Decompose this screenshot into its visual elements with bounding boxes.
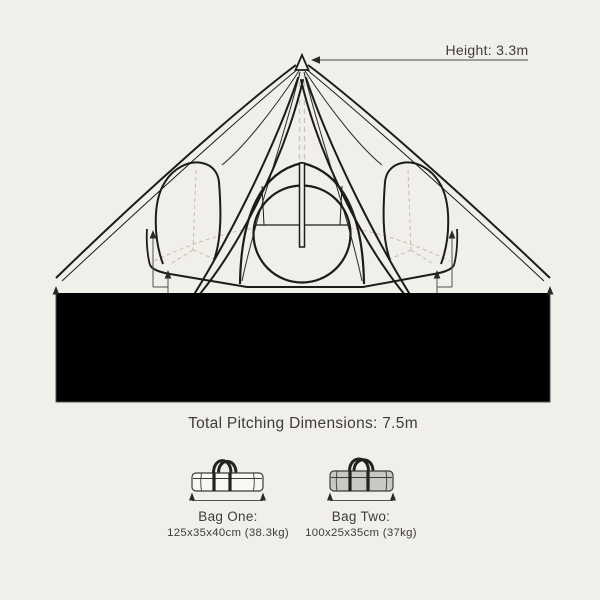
diagram-svg: Height: 3.3m 25cm 25cm Tent Floor Width:…: [0, 0, 600, 600]
left-wall-edge: [147, 229, 150, 265]
up-arrowhead-icon: [327, 493, 333, 501]
bag-two-illustration: [327, 459, 396, 501]
height-label: Height: 3.3m: [446, 42, 529, 58]
up-arrowhead-icon: [449, 230, 456, 239]
right-window: [384, 162, 449, 264]
bag-one-illustration: [189, 461, 266, 501]
bag-one-body: [192, 473, 263, 491]
up-arrowhead-icon: [547, 286, 554, 295]
up-arrowhead-icon: [260, 493, 266, 501]
left-window: [156, 162, 221, 264]
bag-two-width-dimension: [327, 493, 396, 501]
tent-dimensions-diagram: Height: 3.3m 25cm 25cm Tent Floor Width:…: [0, 0, 600, 600]
bag-two-name: Bag Two:: [332, 509, 390, 524]
bag-one-dimensions: 125x35x40cm (38.3kg): [167, 527, 289, 539]
pitching-label: Total Pitching Dimensions: 7.5m: [188, 415, 418, 432]
bag-two-dimensions: 100x25x35cm (37kg): [305, 527, 417, 539]
bag-two-body: [330, 471, 393, 491]
canopy-right-edge: [306, 65, 550, 281]
tent-illustration: [56, 55, 550, 310]
up-arrowhead-icon: [189, 493, 195, 501]
right-wall-edge: [454, 229, 457, 265]
height-arrowhead-icon: [311, 56, 320, 63]
bag-one-handles: [214, 461, 237, 473]
tent-skirt-outline: [150, 265, 454, 287]
bag-one-width-dimension: [189, 493, 266, 501]
up-arrowhead-icon: [390, 493, 396, 501]
bag-one-name: Bag One:: [198, 509, 257, 524]
up-arrowhead-icon: [53, 286, 60, 295]
pitching-dimension: [53, 286, 554, 402]
canopy-left-edge: [56, 65, 298, 281]
bag-two-handles: [350, 459, 374, 471]
peak-cap: [296, 55, 309, 70]
center-pole: [300, 163, 305, 247]
